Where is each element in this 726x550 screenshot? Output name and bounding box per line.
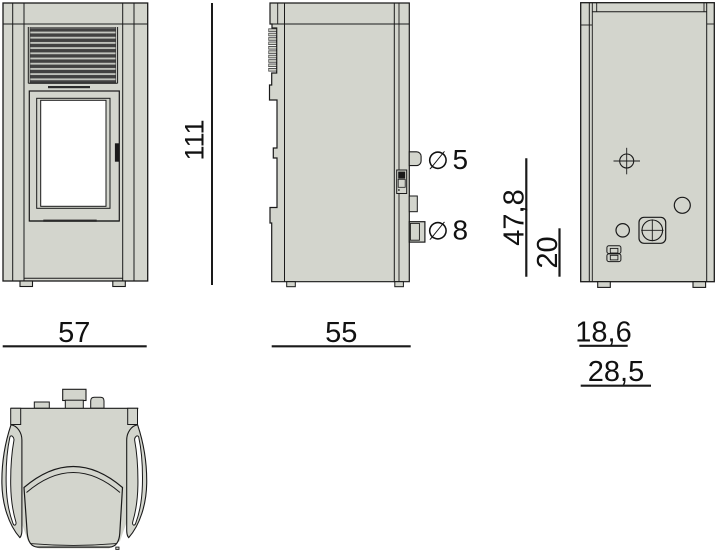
air-grille xyxy=(30,27,116,83)
top-right-corner-block xyxy=(128,408,138,424)
chimney-outlet-base xyxy=(65,400,83,408)
grille-lower-vent-slot xyxy=(48,86,90,88)
stove-dimension-sheet: 111 57 55 ∅ 5 ∅ 8 47,8 20 18,6 28,5 xyxy=(0,0,726,550)
rear-right-foot xyxy=(693,282,706,288)
chimney-outlet xyxy=(63,389,86,400)
smoke-outlet-pipe xyxy=(409,222,425,242)
junction-box xyxy=(409,196,417,212)
rear-offset-upper-label: 18,6 xyxy=(575,316,631,348)
rear-upper-port xyxy=(674,197,690,213)
smoke-pipe-diameter-value: 8 xyxy=(453,214,469,245)
top-right-side-panel xyxy=(127,425,147,538)
door-glass xyxy=(41,100,106,206)
switch-screw xyxy=(398,189,400,191)
front-width-dimension-label: 57 xyxy=(58,317,90,349)
side-body xyxy=(270,3,410,282)
side-rear-foot xyxy=(395,282,404,287)
rear-upper-height-label: 47,8 xyxy=(499,189,531,245)
smoke-pipe-flange xyxy=(409,222,425,242)
rear-left-foot xyxy=(598,282,611,288)
socket-upper xyxy=(607,246,621,254)
rear-offset-lower-label: 28,5 xyxy=(588,356,644,388)
rear-lower-height-label: 20 xyxy=(532,236,564,268)
power-switch-box xyxy=(397,170,407,194)
stove-dimensions-drawing: 111 57 55 ∅ 5 ∅ 8 47,8 20 18,6 28,5 xyxy=(0,0,726,550)
depth-dimension-label: 55 xyxy=(325,317,357,349)
top-hopper-knob xyxy=(91,397,104,408)
smoke-pipe-diameter-symbol: ∅ xyxy=(427,216,449,245)
front-right-foot xyxy=(113,281,126,287)
front-view xyxy=(3,3,148,287)
rear-view xyxy=(581,3,715,288)
door-handle xyxy=(115,143,119,161)
air-intake-pipe xyxy=(409,152,421,166)
side-grille-fins xyxy=(268,28,277,72)
top-left-corner-block xyxy=(11,408,21,424)
side-view xyxy=(268,3,425,287)
air-pipe-diameter-value: 5 xyxy=(453,144,469,175)
front-left-foot xyxy=(20,281,33,287)
power-socket xyxy=(607,246,621,262)
air-pipe-diameter-symbol: ∅ xyxy=(427,146,449,175)
height-dimension-label: 111 xyxy=(180,119,210,160)
top-left-side-panel xyxy=(2,425,22,538)
top-door-band xyxy=(24,467,123,548)
side-front-foot xyxy=(287,282,296,287)
ash-drawer-slot xyxy=(43,220,96,222)
rear-lower-port xyxy=(616,224,629,237)
rocker-switch xyxy=(398,172,405,179)
top-rear-tab xyxy=(34,402,49,408)
top-view xyxy=(2,389,147,549)
top-foot-tick xyxy=(116,547,119,549)
rear-smoke-outlet xyxy=(639,217,666,243)
